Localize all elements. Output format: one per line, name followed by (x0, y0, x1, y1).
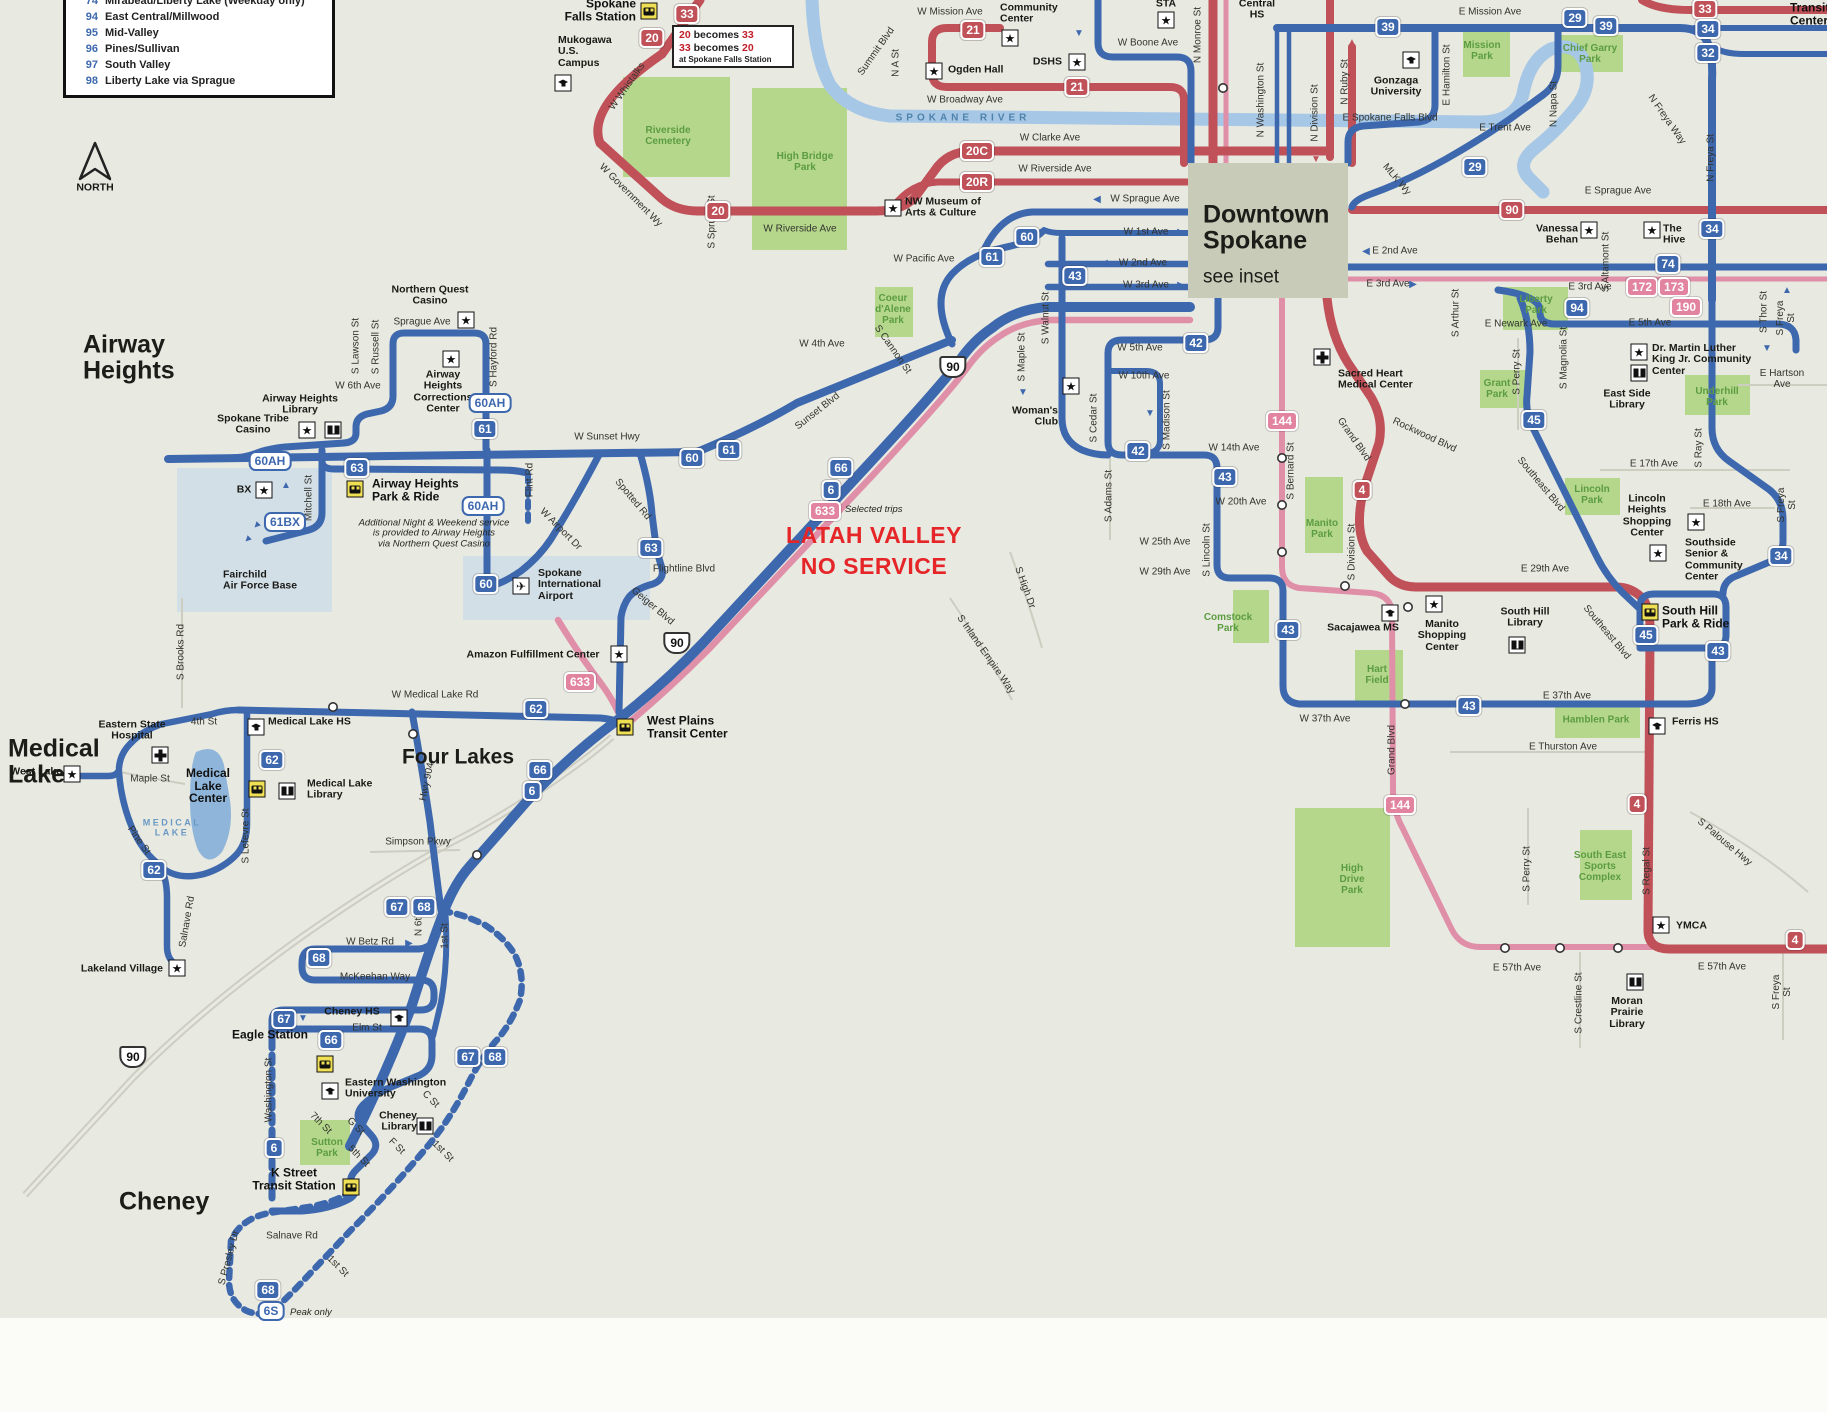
route-line-gonzaga-blue (1348, 28, 1435, 163)
route-line-blue-hwy904 (412, 712, 441, 910)
spokane-transit-system-map: 74Mirabeau/Liberty Lake (Weekday only)94… (0, 0, 1827, 1412)
route-line-route-62-medlake (238, 710, 618, 722)
falls-note-text: becomes (691, 42, 742, 54)
legend-route-number: 74 (74, 0, 98, 9)
north-arrow-icon (80, 143, 110, 179)
route-legend: 74Mirabeau/Liberty Lake (Weekday only)94… (63, 0, 335, 98)
route-line-route-32-ne (1712, 46, 1827, 54)
stop-dot-11 (1556, 944, 1564, 952)
stop-dot-6 (1278, 548, 1286, 556)
park-area-6 (1480, 370, 1528, 408)
route-line-route-42-inner (1108, 371, 1160, 453)
legend-route-number: 95 (74, 25, 98, 41)
legend-route-number: 96 (74, 41, 98, 57)
stop-dot-10 (1501, 944, 1509, 952)
stop-dot-3 (473, 851, 481, 859)
route-line-pink-geiger (558, 620, 619, 714)
route-line-route-63 (322, 461, 527, 473)
park-area-13 (1295, 808, 1390, 947)
route-line-route-45 (1520, 298, 1641, 610)
stop-dot-8 (1404, 603, 1412, 611)
falls-note-text: becomes (691, 29, 742, 41)
legend-row-98: 98Liberty Lake via Sprague (74, 73, 324, 89)
route-line-route-33-ne (1642, 0, 1827, 10)
park-area-11 (1355, 650, 1403, 703)
legend-route-number: 97 (74, 57, 98, 73)
park-area-14 (1580, 830, 1632, 900)
stop-dot-7 (1341, 582, 1349, 590)
route-line-first-ave (1044, 230, 1190, 233)
stop-dot-4 (1278, 454, 1286, 462)
park-area-2 (875, 287, 913, 337)
legend-row-94: 94East Central/Millwood (74, 9, 324, 25)
park-area-1 (752, 88, 847, 250)
park-area-15 (300, 1120, 350, 1165)
stop-dot-9 (1401, 700, 1409, 708)
park-area-10 (1233, 590, 1269, 643)
road-14 (950, 598, 1012, 700)
legend-route-name: Pines/Sullivan (105, 41, 180, 57)
spokane-falls-station-note: 20 becomes 3333 becomes 20at Spokane Fal… (672, 25, 794, 68)
falls-note-line-0: 20 becomes 33 (679, 29, 787, 42)
route-line-ah-left (168, 396, 393, 459)
route-line-boone-loop (1098, 0, 1191, 163)
legend-route-name: Mirabeau/Liberty Lake (Weekday only) (105, 0, 305, 9)
falls-note-text: 33 (679, 42, 691, 54)
stop-dot-0 (1219, 84, 1227, 92)
stop-dot-2 (409, 730, 417, 738)
legend-route-number: 94 (74, 9, 98, 25)
legend-row-96: 96Pines/Sullivan (74, 41, 324, 57)
legend-route-name: East Central/Millwood (105, 9, 219, 25)
falls-note-text: 20 (679, 29, 691, 41)
legend-route-name: South Valley (105, 57, 170, 73)
legend-route-name: Mid-Valley (105, 25, 159, 41)
medical-lake-water (190, 749, 231, 860)
legend-route-name: Liberty Lake via Sprague (105, 73, 235, 89)
legend-route-number: 98 (74, 73, 98, 89)
stop-dot-1 (329, 703, 337, 711)
light-area-2 (0, 1318, 1827, 1412)
park-area-7 (1685, 375, 1750, 415)
route-line-route-4 (1327, 298, 1827, 949)
park-area-9 (1305, 477, 1343, 553)
road-16 (370, 850, 460, 852)
downtown-inset-box (1188, 163, 1348, 298)
legend-row-95: 95Mid-Valley (74, 25, 324, 41)
falls-note-text: 20 (742, 42, 754, 54)
route-line-route-43-n (1062, 238, 1108, 455)
park-area-12 (1555, 705, 1640, 738)
route-line-route-21 (932, 28, 1184, 163)
route-line-ml-west-lake (78, 770, 119, 776)
road-12 (1690, 812, 1808, 892)
falls-note-line-1: 33 becomes 20 (679, 42, 787, 55)
road-15 (120, 772, 185, 784)
route-line-eagle-ewu (272, 1029, 432, 1211)
stop-dot-12 (1614, 944, 1622, 952)
stop-dot-5 (1278, 501, 1286, 509)
falls-note-small: at Spokane Falls Station (679, 55, 787, 64)
park-area-0 (623, 77, 730, 177)
road-13 (1010, 552, 1042, 648)
route-line-ah-sprague-loop (393, 333, 486, 449)
park-area-3 (1463, 32, 1510, 77)
route-line-freya-south (1712, 300, 1783, 594)
legend-row-74: 74Mirabeau/Liberty Lake (Weekday only) (74, 0, 324, 9)
map-canvas (0, 0, 1827, 1412)
light-area-0 (177, 468, 332, 612)
falls-note-text: 33 (742, 29, 754, 41)
legend-row-97: 97South Valley (74, 57, 324, 73)
